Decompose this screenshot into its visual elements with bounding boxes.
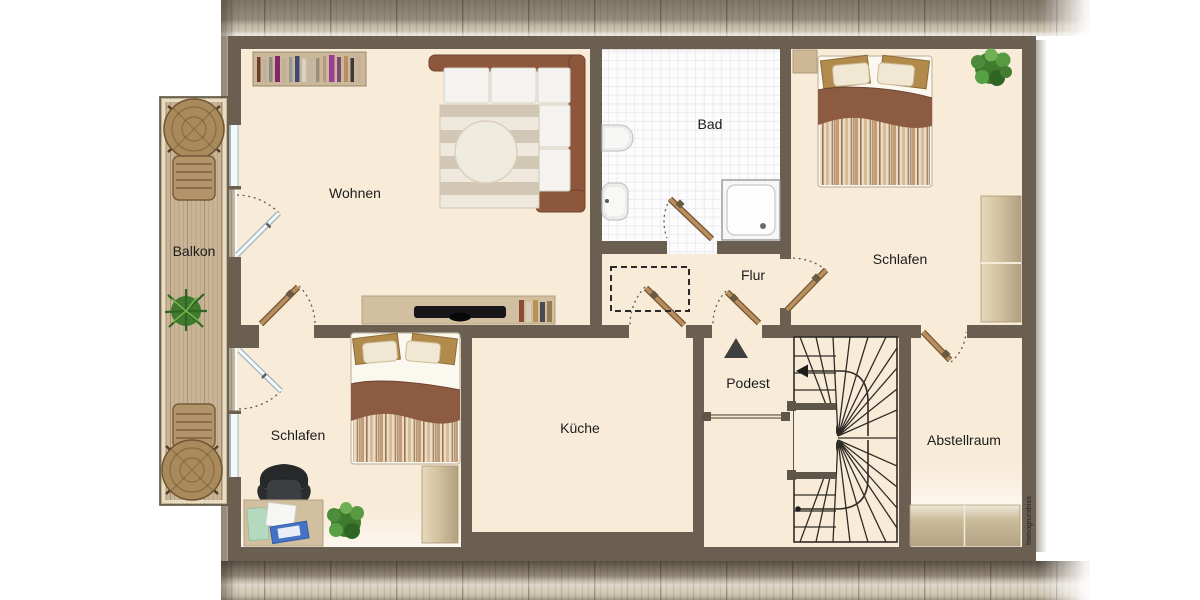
svg-text:Flur: Flur xyxy=(741,267,765,283)
svg-text:Podest: Podest xyxy=(726,375,770,391)
svg-text:Küche: Küche xyxy=(560,420,600,436)
svg-text:Wohnen: Wohnen xyxy=(329,185,381,201)
svg-text:Bad: Bad xyxy=(698,116,723,132)
svg-text:Schlafen: Schlafen xyxy=(873,251,927,267)
svg-text:Immogrundriss: Immogrundriss xyxy=(1026,496,1033,545)
svg-text:Schlafen: Schlafen xyxy=(271,427,325,443)
svg-text:Abstellraum: Abstellraum xyxy=(927,432,1001,448)
svg-text:Balkon: Balkon xyxy=(173,243,216,259)
